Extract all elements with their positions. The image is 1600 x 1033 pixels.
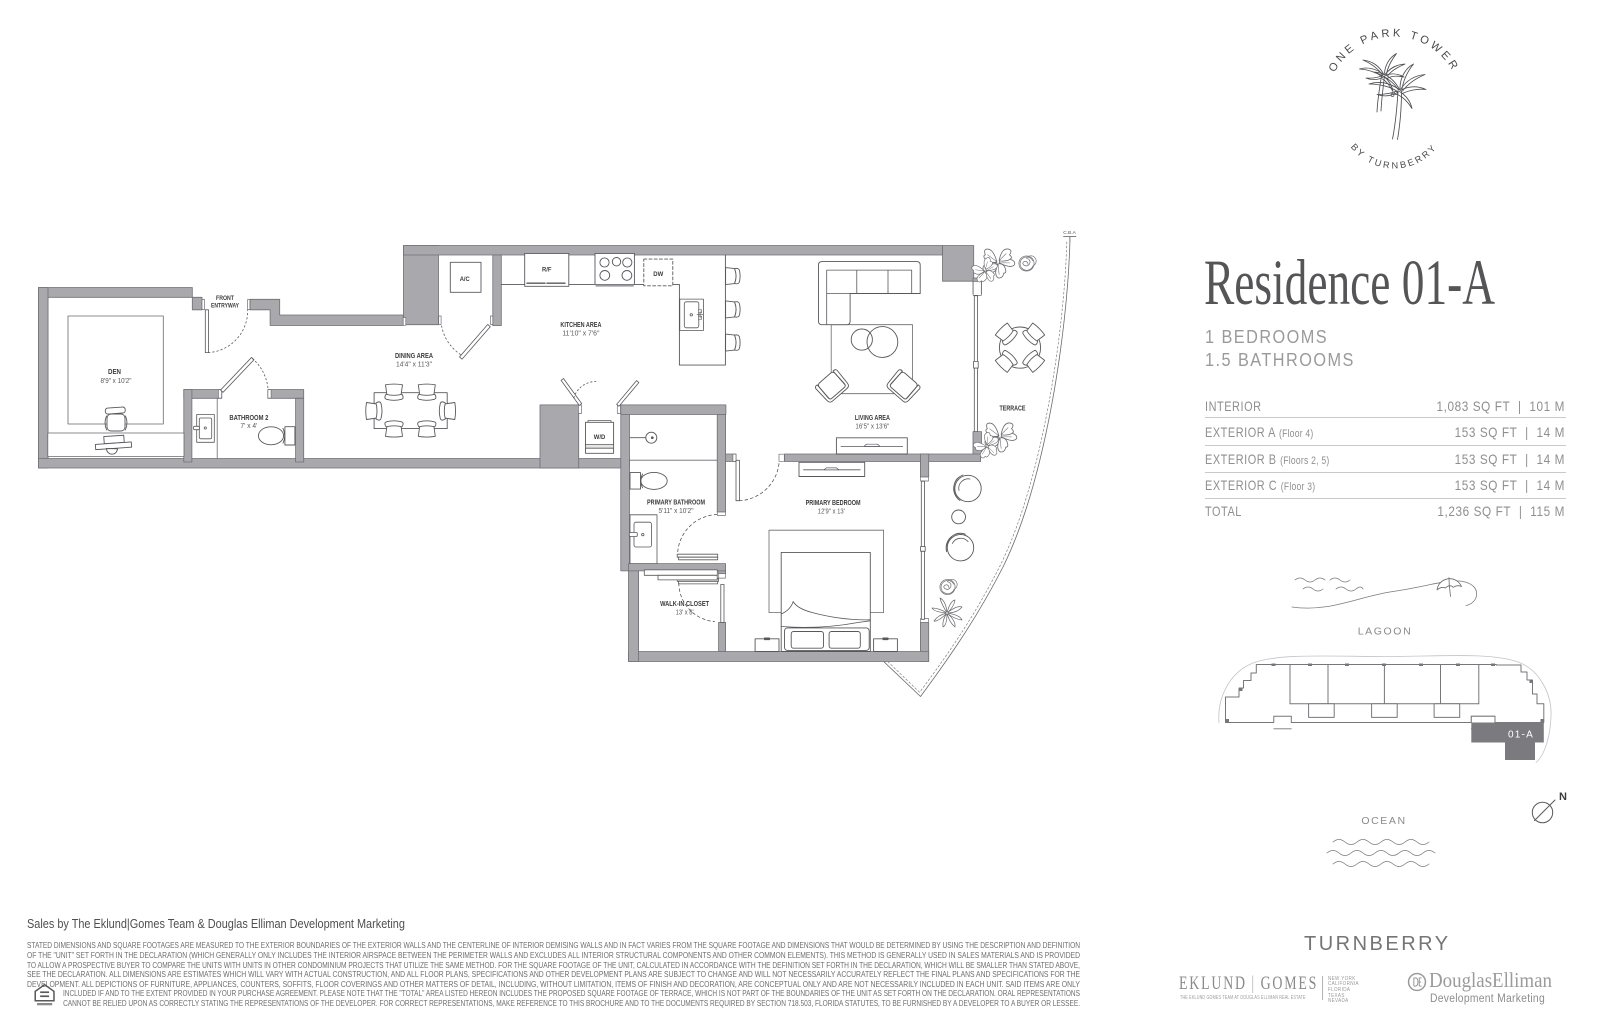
svg-text:01-A: 01-A xyxy=(1508,730,1534,741)
svg-text:C.B.A: C.B.A xyxy=(1063,230,1076,236)
svg-text:N: N xyxy=(1559,791,1567,803)
svg-text:12'9" x 13': 12'9" x 13' xyxy=(818,508,845,515)
svg-text:WALK-IN CLOSET: WALK-IN CLOSET xyxy=(660,599,709,608)
svg-text:14'4" x 11'3": 14'4" x 11'3" xyxy=(396,362,433,369)
svg-text:ENTRYWAY: ENTRYWAY xyxy=(211,303,240,310)
svg-text:DEN: DEN xyxy=(108,367,121,376)
svg-text:5'11" x 10'2": 5'11" x 10'2" xyxy=(659,508,695,515)
svg-text:R/F: R/F xyxy=(542,267,552,274)
svg-text:W/D: W/D xyxy=(594,434,606,441)
svg-text:DW: DW xyxy=(653,271,663,278)
svg-text:KITCHEN AREA: KITCHEN AREA xyxy=(560,320,601,329)
svg-text:A/C: A/C xyxy=(460,276,470,283)
svg-text:LIVING AREA: LIVING AREA xyxy=(855,413,890,422)
svg-text:BATHROOM 2: BATHROOM 2 xyxy=(229,413,268,422)
svg-text:TERRACE: TERRACE xyxy=(1000,404,1026,413)
svg-text:BY TURNBERRY: BY TURNBERRY xyxy=(1349,142,1439,171)
svg-text:PRIMARY BATHROOM: PRIMARY BATHROOM xyxy=(647,498,705,507)
svg-text:FRONT: FRONT xyxy=(216,295,234,302)
svg-text:8'9" x 10'2": 8'9" x 10'2" xyxy=(101,378,132,385)
svg-text:DINING AREA: DINING AREA xyxy=(395,351,434,360)
svg-text:13' x 8': 13' x 8' xyxy=(676,610,694,617)
svg-text:LAGOON: LAGOON xyxy=(1358,626,1413,638)
svg-text:16'5" x 13'6": 16'5" x 13'6" xyxy=(855,423,889,430)
svg-text:OCEAN: OCEAN xyxy=(1361,815,1406,827)
svg-text:7' x 4': 7' x 4' xyxy=(240,423,257,430)
svg-text:PRIMARY BEDROOM: PRIMARY BEDROOM xyxy=(806,498,861,507)
svg-text:11'10" x 7'6": 11'10" x 7'6" xyxy=(562,331,600,338)
